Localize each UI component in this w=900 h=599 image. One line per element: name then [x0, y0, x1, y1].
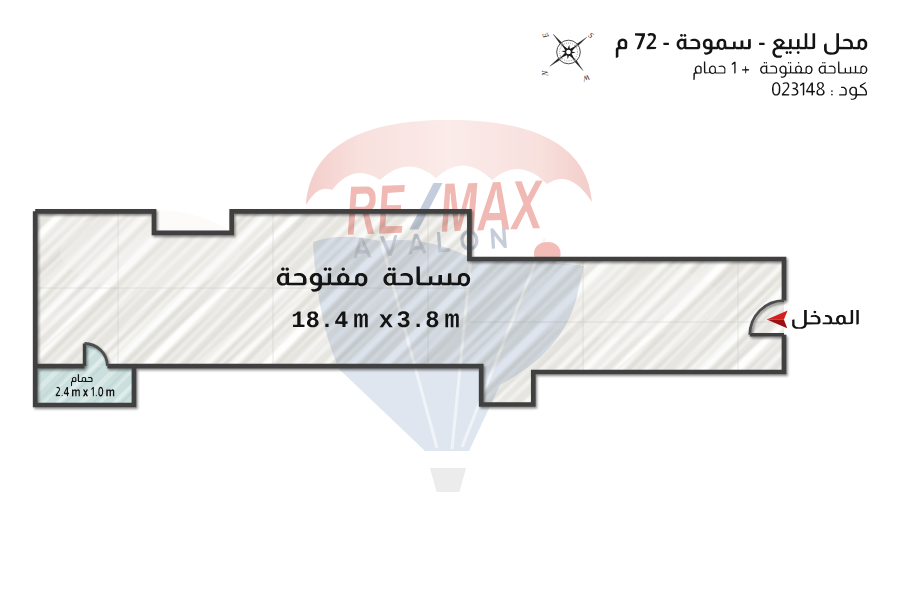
- svg-text:N: N: [541, 70, 550, 77]
